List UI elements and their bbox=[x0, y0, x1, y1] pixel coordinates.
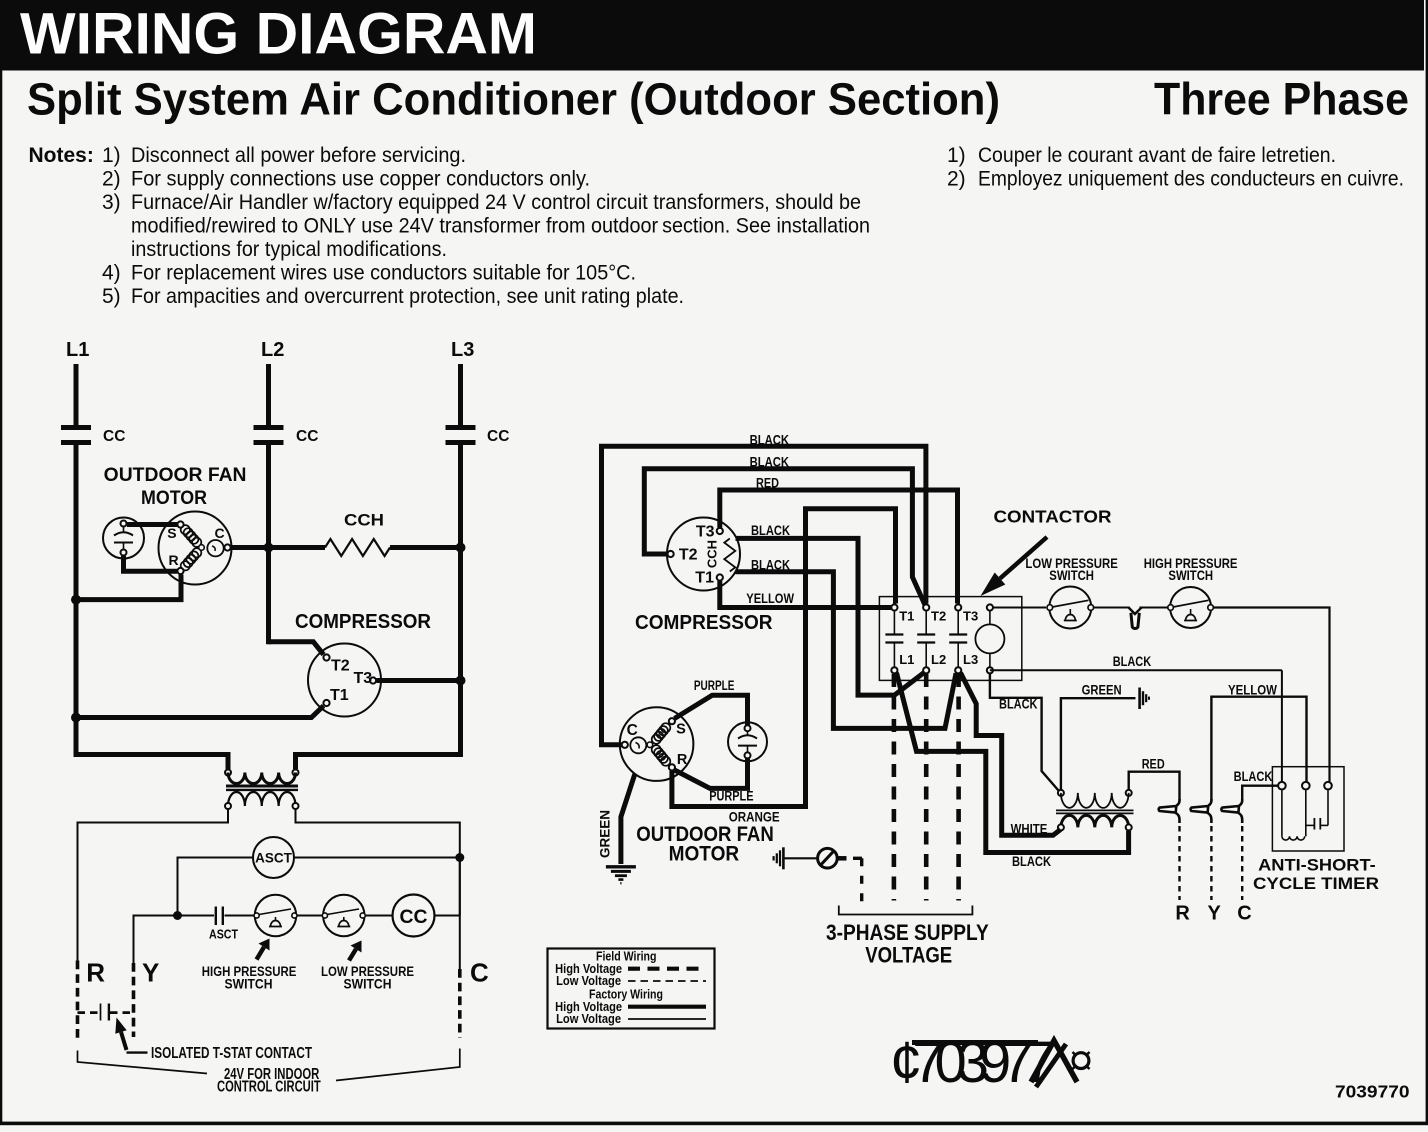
svg-text:Employez uniquement des conduc: Employez uniquement des conducteurs en c… bbox=[978, 168, 1404, 191]
svg-text:For ampacities and overcurrent: For ampacities and overcurrent protectio… bbox=[131, 285, 684, 308]
svg-text:BLACK: BLACK bbox=[1012, 854, 1051, 869]
svg-text:2): 2) bbox=[102, 168, 121, 191]
svg-text:BLACK: BLACK bbox=[1234, 769, 1273, 784]
svg-text:T3: T3 bbox=[696, 524, 715, 541]
svg-text:R: R bbox=[677, 752, 688, 768]
svg-text:R: R bbox=[86, 958, 105, 988]
svg-text:T2: T2 bbox=[679, 547, 698, 564]
svg-text:COMPRESSOR: COMPRESSOR bbox=[295, 611, 432, 633]
svg-text:YELLOW: YELLOW bbox=[746, 591, 794, 606]
svg-text:ANTI-SHORT-: ANTI-SHORT- bbox=[1258, 857, 1376, 875]
svg-text:YELLOW: YELLOW bbox=[1228, 683, 1277, 698]
svg-text:CC: CC bbox=[399, 906, 427, 928]
svg-text:SWITCH: SWITCH bbox=[1168, 568, 1213, 583]
svg-text:CCH: CCH bbox=[344, 511, 384, 530]
svg-text:CONTROL CIRCUIT: CONTROL CIRCUIT bbox=[217, 1079, 321, 1096]
svg-text:T2: T2 bbox=[331, 658, 350, 675]
svg-text:2): 2) bbox=[947, 168, 966, 191]
svg-text:3): 3) bbox=[102, 191, 121, 214]
svg-text:4): 4) bbox=[102, 262, 121, 285]
svg-text:For replacement wires use cond: For replacement wires use conductors sui… bbox=[131, 262, 636, 285]
svg-text:instructions for typical modif: instructions for typical modifications. bbox=[131, 238, 447, 261]
svg-text:ASCT: ASCT bbox=[255, 851, 293, 866]
svg-text:BLACK: BLACK bbox=[999, 697, 1038, 712]
svg-text:L1: L1 bbox=[899, 652, 914, 667]
svg-text:WHITE: WHITE bbox=[1011, 821, 1048, 836]
svg-text:C: C bbox=[470, 958, 489, 988]
svg-text:ISOLATED T-STAT CONTACT: ISOLATED T-STAT CONTACT bbox=[151, 1045, 312, 1062]
svg-text:GREEN: GREEN bbox=[1082, 682, 1122, 697]
svg-text:L2: L2 bbox=[931, 652, 946, 667]
svg-text:SWITCH: SWITCH bbox=[344, 976, 392, 991]
svg-text:RED: RED bbox=[1142, 756, 1165, 771]
svg-text:BLACK: BLACK bbox=[750, 454, 790, 469]
svg-text:BLACK: BLACK bbox=[751, 523, 790, 538]
svg-text:C: C bbox=[1237, 902, 1251, 924]
svg-text:R: R bbox=[169, 552, 179, 568]
svg-text:Y: Y bbox=[1208, 902, 1222, 924]
svg-text:L3: L3 bbox=[963, 652, 978, 667]
svg-text:1): 1) bbox=[102, 144, 121, 167]
svg-text:VOLTAGE: VOLTAGE bbox=[865, 943, 952, 968]
svg-text:T3: T3 bbox=[354, 670, 373, 687]
svg-text:T1: T1 bbox=[695, 570, 714, 587]
svg-text:T3: T3 bbox=[963, 609, 978, 624]
svg-text:C: C bbox=[215, 525, 225, 541]
svg-text:Split System Air Conditioner (: Split System Air Conditioner (Outdoor Se… bbox=[27, 74, 1000, 125]
svg-text:1): 1) bbox=[947, 144, 966, 167]
svg-text:7039770: 7039770 bbox=[1335, 1081, 1410, 1101]
svg-text:S: S bbox=[167, 525, 176, 541]
svg-text:For supply connections use cop: For supply connections use copper conduc… bbox=[131, 168, 590, 191]
svg-text:L1: L1 bbox=[66, 339, 89, 361]
svg-text:Y: Y bbox=[142, 958, 159, 988]
svg-text:CONTACTOR: CONTACTOR bbox=[994, 507, 1112, 527]
svg-text:Low Voltage: Low Voltage bbox=[556, 1012, 621, 1026]
svg-text:RED: RED bbox=[756, 475, 779, 490]
svg-text:Notes:: Notes: bbox=[29, 144, 94, 167]
svg-text:BLACK: BLACK bbox=[750, 432, 790, 447]
svg-text:¢703977: ¢703977 bbox=[890, 1030, 1054, 1095]
svg-text:CC: CC bbox=[487, 428, 509, 445]
svg-text:ORANGE: ORANGE bbox=[729, 810, 780, 825]
svg-text:OUTDOOR FAN: OUTDOOR FAN bbox=[104, 465, 247, 486]
svg-text:CC: CC bbox=[296, 428, 318, 445]
svg-text:BLACK: BLACK bbox=[1113, 654, 1152, 669]
svg-text:T1: T1 bbox=[899, 609, 914, 624]
svg-text:T2: T2 bbox=[931, 609, 946, 624]
svg-text:S: S bbox=[676, 722, 686, 738]
svg-text:Furnace/Air Handler w/factory: Furnace/Air Handler w/factory equipped 2… bbox=[131, 191, 861, 214]
svg-text:MOTOR: MOTOR bbox=[141, 488, 207, 509]
svg-text:L2: L2 bbox=[261, 339, 284, 361]
svg-text:ASCT: ASCT bbox=[209, 927, 238, 942]
svg-text:COMPRESSOR: COMPRESSOR bbox=[635, 612, 773, 634]
svg-text:WIRING DIAGRAM: WIRING DIAGRAM bbox=[20, 2, 537, 67]
svg-text:CC: CC bbox=[103, 428, 125, 445]
svg-text:SWITCH: SWITCH bbox=[1049, 568, 1094, 583]
svg-text:PURPLE: PURPLE bbox=[709, 789, 753, 804]
svg-text:Disconnect all power before se: Disconnect all power before servicing. bbox=[131, 144, 466, 167]
svg-text:SWITCH: SWITCH bbox=[225, 976, 273, 991]
svg-text:3-PHASE SUPPLY: 3-PHASE SUPPLY bbox=[826, 920, 989, 945]
svg-text:GREEN: GREEN bbox=[598, 810, 613, 858]
svg-text:T1: T1 bbox=[330, 687, 349, 704]
svg-text:BLACK: BLACK bbox=[751, 557, 790, 572]
svg-text:5): 5) bbox=[102, 285, 121, 308]
svg-text:MOTOR: MOTOR bbox=[669, 843, 740, 866]
svg-text:modified/rewired to ONLY use 2: modified/rewired to ONLY use 24V transfo… bbox=[131, 215, 870, 238]
svg-text:Couper le courant avant de fai: Couper le courant avant de faire letreti… bbox=[978, 144, 1336, 167]
svg-text:PURPLE: PURPLE bbox=[694, 678, 735, 693]
svg-text:CYCLE TIMER: CYCLE TIMER bbox=[1253, 875, 1379, 893]
svg-text:R: R bbox=[1175, 902, 1190, 924]
svg-text:C: C bbox=[627, 722, 638, 739]
svg-text:CCH: CCH bbox=[705, 540, 720, 568]
svg-text:L3: L3 bbox=[451, 339, 474, 361]
svg-text:Three Phase: Three Phase bbox=[1154, 74, 1409, 125]
